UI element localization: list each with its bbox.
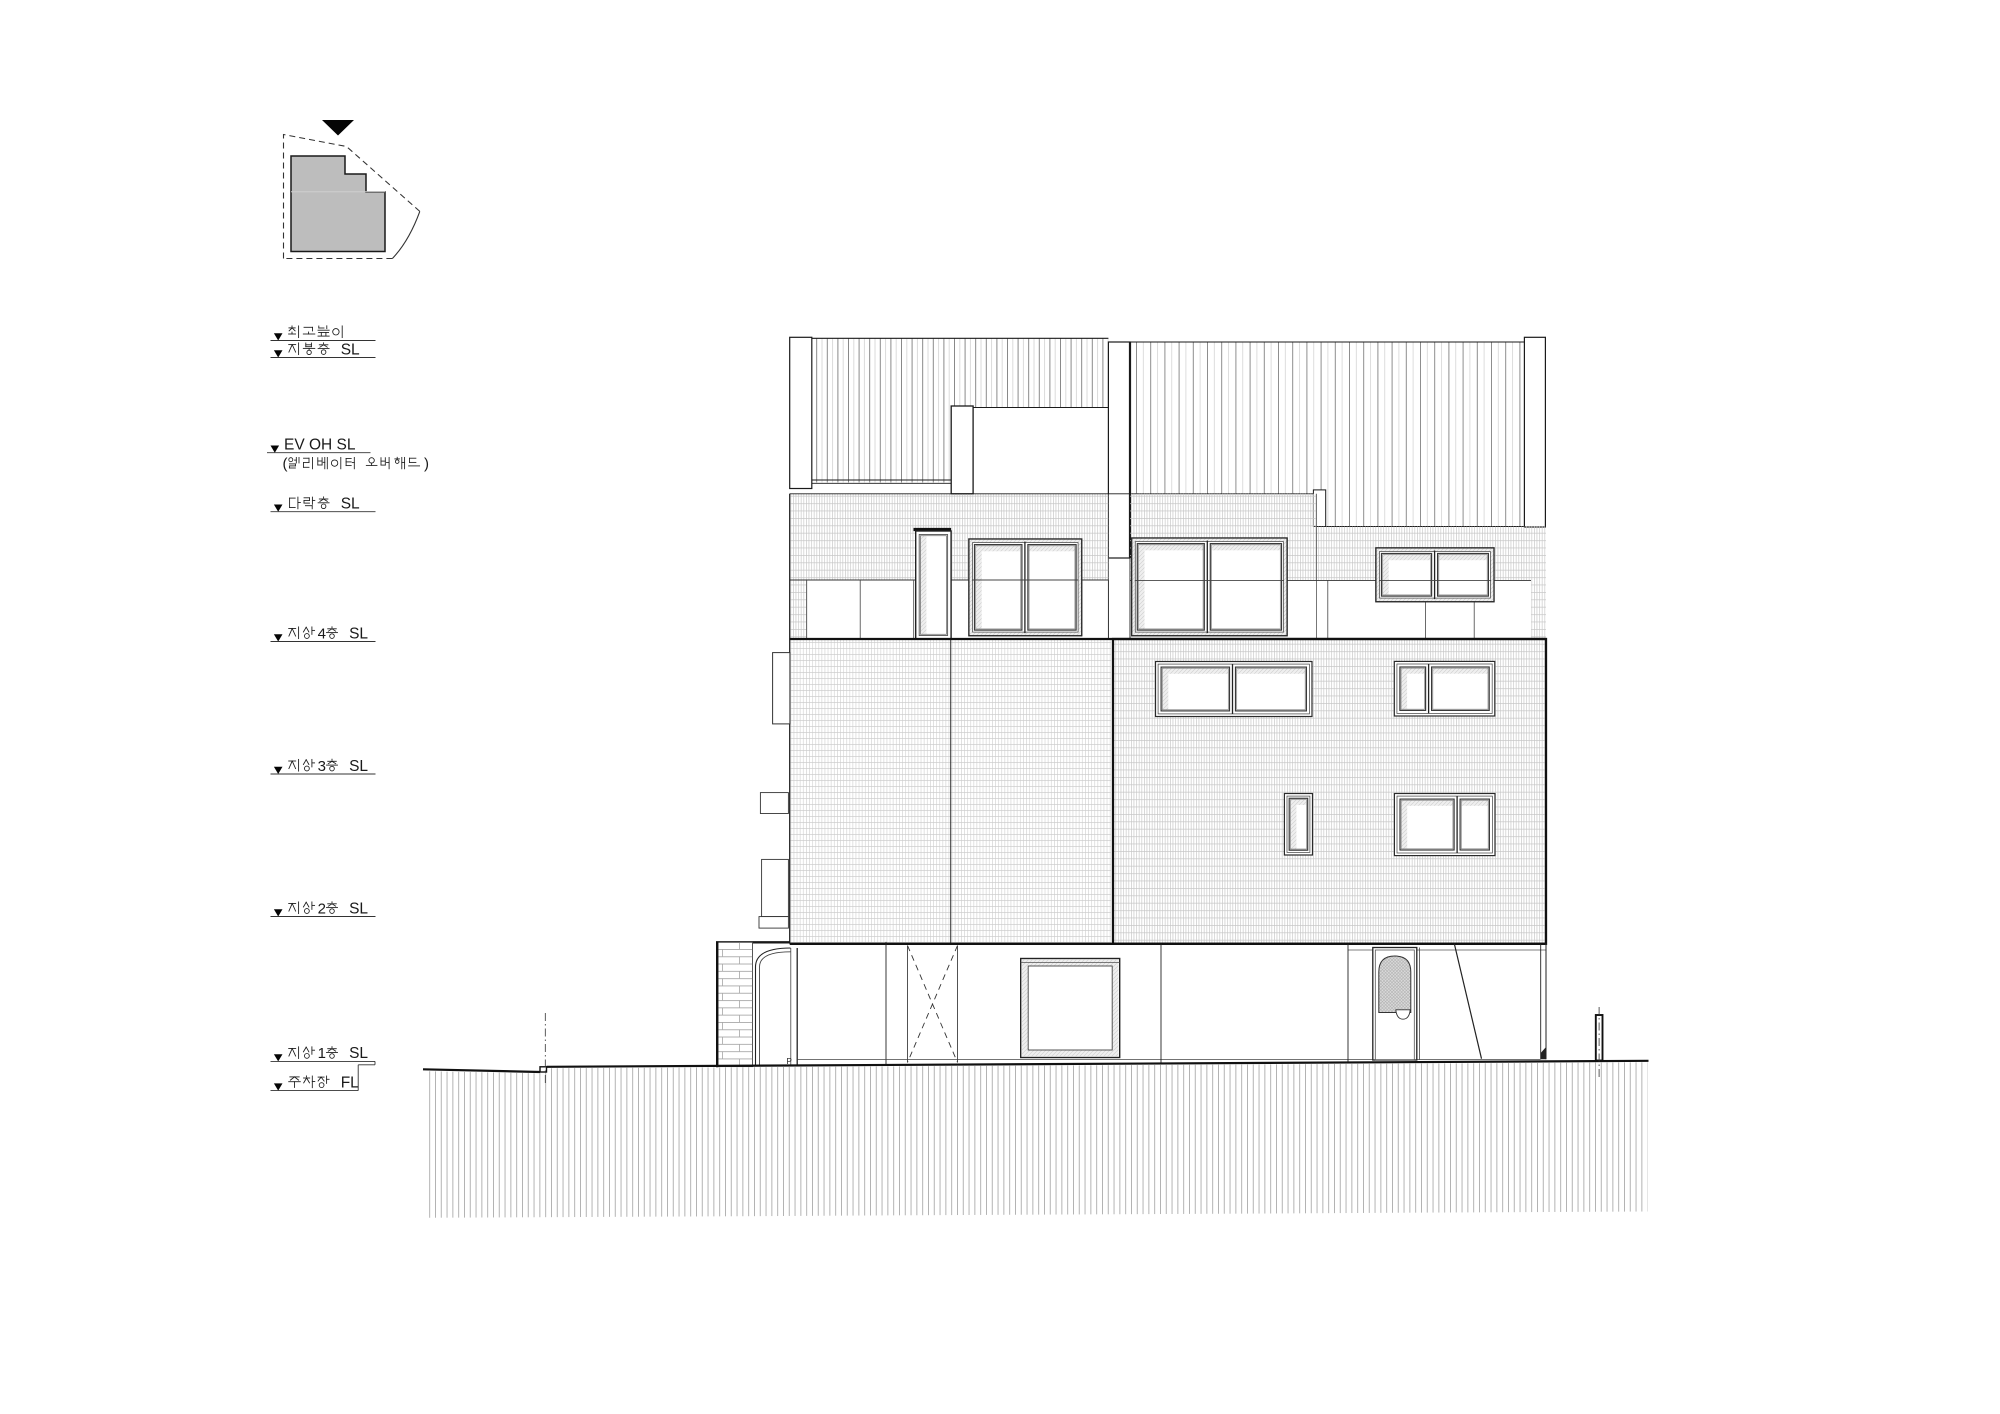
svg-text:SL: SL: [341, 341, 360, 358]
svg-text:3: 3: [318, 758, 326, 775]
svg-text:SL: SL: [349, 1045, 368, 1062]
svg-text:SL: SL: [349, 758, 368, 775]
svg-text:4: 4: [318, 625, 326, 642]
svg-text:FL: FL: [341, 1074, 359, 1091]
svg-text:SL: SL: [349, 900, 368, 917]
svg-text:2: 2: [318, 900, 326, 917]
svg-text:): ): [424, 456, 429, 473]
svg-text:EV OH SL: EV OH SL: [284, 436, 356, 453]
svg-text:SL: SL: [349, 625, 368, 642]
svg-text:SL: SL: [341, 496, 360, 513]
svg-text:1: 1: [318, 1045, 326, 1062]
svg-text:(: (: [283, 456, 288, 473]
